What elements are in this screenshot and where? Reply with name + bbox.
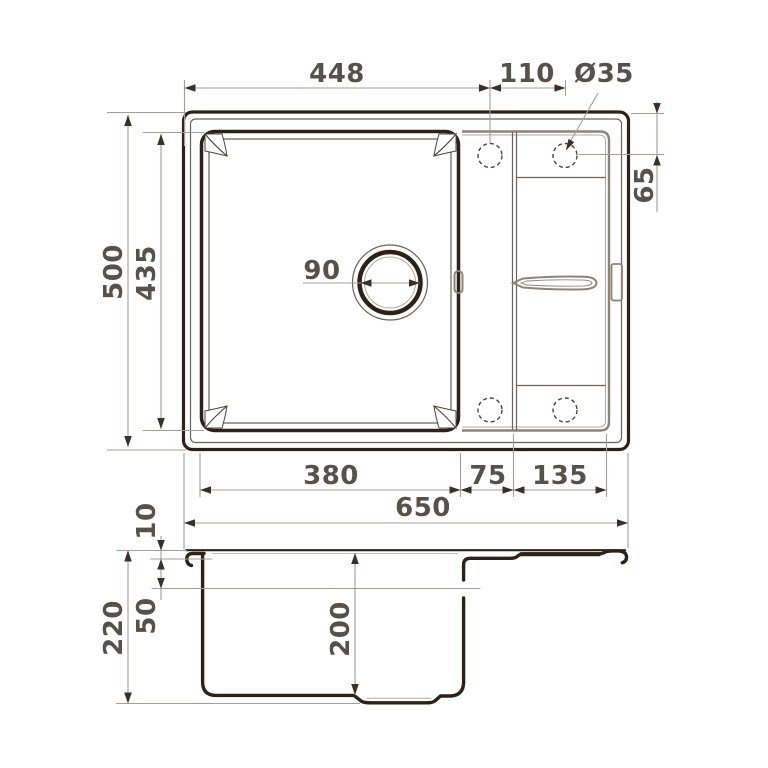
- dim-label-110: 110: [499, 59, 555, 89]
- arrowhead: [617, 519, 628, 527]
- arrowhead: [653, 155, 661, 166]
- overflow-slot: [612, 264, 623, 301]
- arrowhead: [124, 436, 132, 447]
- drainer-groove: [513, 277, 597, 290]
- dim-label-380: 380: [303, 461, 359, 491]
- dim-label-435: 435: [132, 245, 162, 301]
- arrowhead: [124, 115, 132, 126]
- arrowhead: [157, 578, 165, 589]
- dim-bowl-inner-depth: 200: [326, 553, 359, 695]
- top-view: [184, 112, 629, 450]
- arrowhead: [514, 486, 525, 494]
- arrowhead: [351, 553, 359, 564]
- arrowhead: [555, 84, 566, 92]
- arrowhead: [157, 540, 165, 551]
- tap-hole: [478, 398, 502, 422]
- dim-label-d35: Ø35: [574, 59, 634, 89]
- drainer-deck: [462, 132, 622, 431]
- dim-label-10: 10: [132, 502, 162, 539]
- dim-tap-diameter: Ø35: [566, 59, 634, 151]
- dim-label-650: 650: [395, 493, 451, 523]
- dim-label-65: 65: [630, 166, 660, 203]
- dim-tap-spacing: 110: [490, 59, 566, 96]
- dim-label-220: 220: [99, 600, 129, 656]
- dim-label-135: 135: [532, 461, 588, 491]
- arrowhead: [596, 486, 607, 494]
- arrowhead: [361, 279, 372, 287]
- dim-gap: 75: [461, 434, 514, 497]
- arrowhead: [653, 103, 661, 114]
- arrowhead: [450, 486, 461, 494]
- dim-bowl-width: 380: [200, 453, 461, 497]
- tap-hole: [478, 144, 502, 168]
- arrowhead: [124, 551, 132, 562]
- drainer-groove-inner: [521, 280, 592, 286]
- drawing-svg: 448 110 Ø35 65 500 435: [0, 0, 768, 768]
- dim-label-50: 50: [132, 597, 162, 634]
- dim-bowl-depth: 435: [132, 133, 204, 431]
- leader-line: [567, 93, 598, 148]
- dim-label-75: 75: [469, 461, 506, 491]
- arrowhead: [185, 84, 196, 92]
- arrowhead: [479, 84, 490, 92]
- arrowhead: [157, 559, 165, 570]
- arrowhead: [157, 134, 165, 145]
- arrowhead: [184, 519, 195, 527]
- rim-inner-line: [191, 119, 622, 443]
- dim-label-448: 448: [309, 59, 365, 89]
- tap-hole: [553, 398, 577, 422]
- tap-holes: [478, 144, 577, 423]
- arrowhead: [124, 693, 132, 704]
- arrowhead: [200, 486, 211, 494]
- sink-technical-drawing: 448 110 Ø35 65 500 435: [0, 0, 768, 768]
- dim-label-500: 500: [99, 244, 129, 300]
- side-view: [152, 550, 627, 703]
- arrowhead: [157, 418, 165, 429]
- arrowhead: [566, 139, 575, 151]
- dim-ledge-depth: 50: [132, 578, 165, 635]
- dim-label-90: 90: [303, 256, 340, 286]
- dim-label-200: 200: [326, 601, 356, 657]
- tap-hole: [553, 144, 577, 168]
- arrowhead: [351, 684, 359, 695]
- dim-drainer-width: 135: [514, 434, 607, 497]
